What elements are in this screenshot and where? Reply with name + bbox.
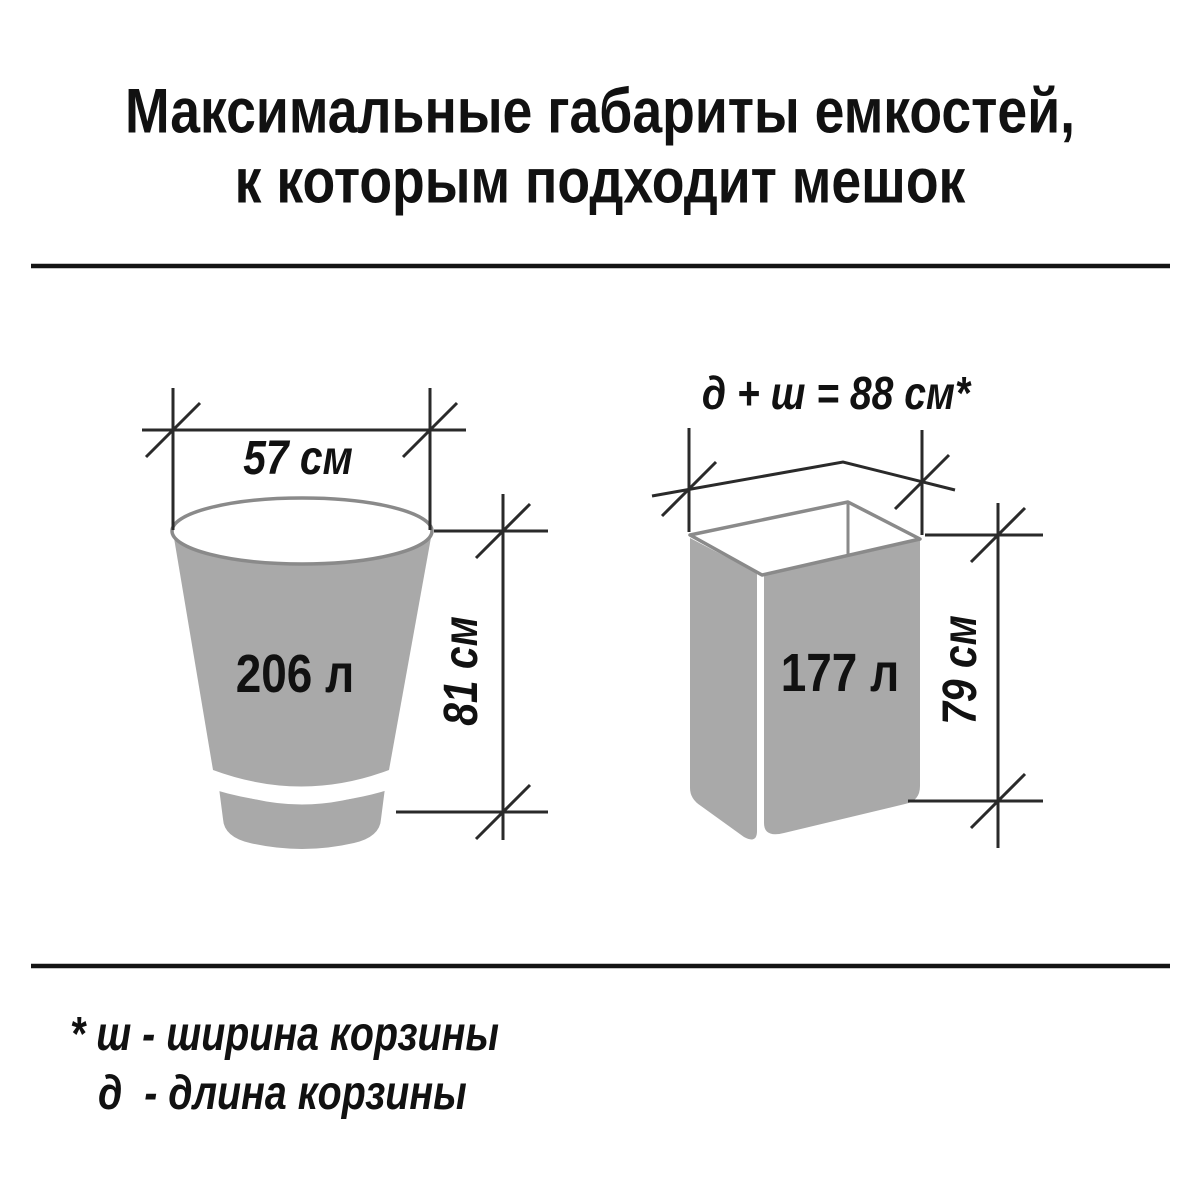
bucket-width-label: 57 см (243, 435, 353, 483)
infographic-canvas: Максимальные габариты емкостей, к которы… (0, 0, 1200, 1200)
page-title-line-2: к которым подходит мешок (235, 151, 966, 214)
page-title-line-1: Максимальные габариты емкостей, (125, 81, 1075, 144)
bucket-rim (172, 498, 432, 564)
basket-volume-label: 177 л (781, 646, 899, 700)
basket-height-label: 79 см (937, 615, 985, 725)
footnote-line-1: * ш - ширина корзины (70, 1011, 499, 1059)
basket-left-face (690, 538, 757, 839)
basket-dimension-sum-label: д + ш = 88 см* (702, 370, 970, 416)
footnote-line-2: д - длина корзины (98, 1070, 467, 1118)
bucket-volume-label: 206 л (236, 647, 354, 701)
bucket-height-label: 81 см (438, 616, 486, 726)
